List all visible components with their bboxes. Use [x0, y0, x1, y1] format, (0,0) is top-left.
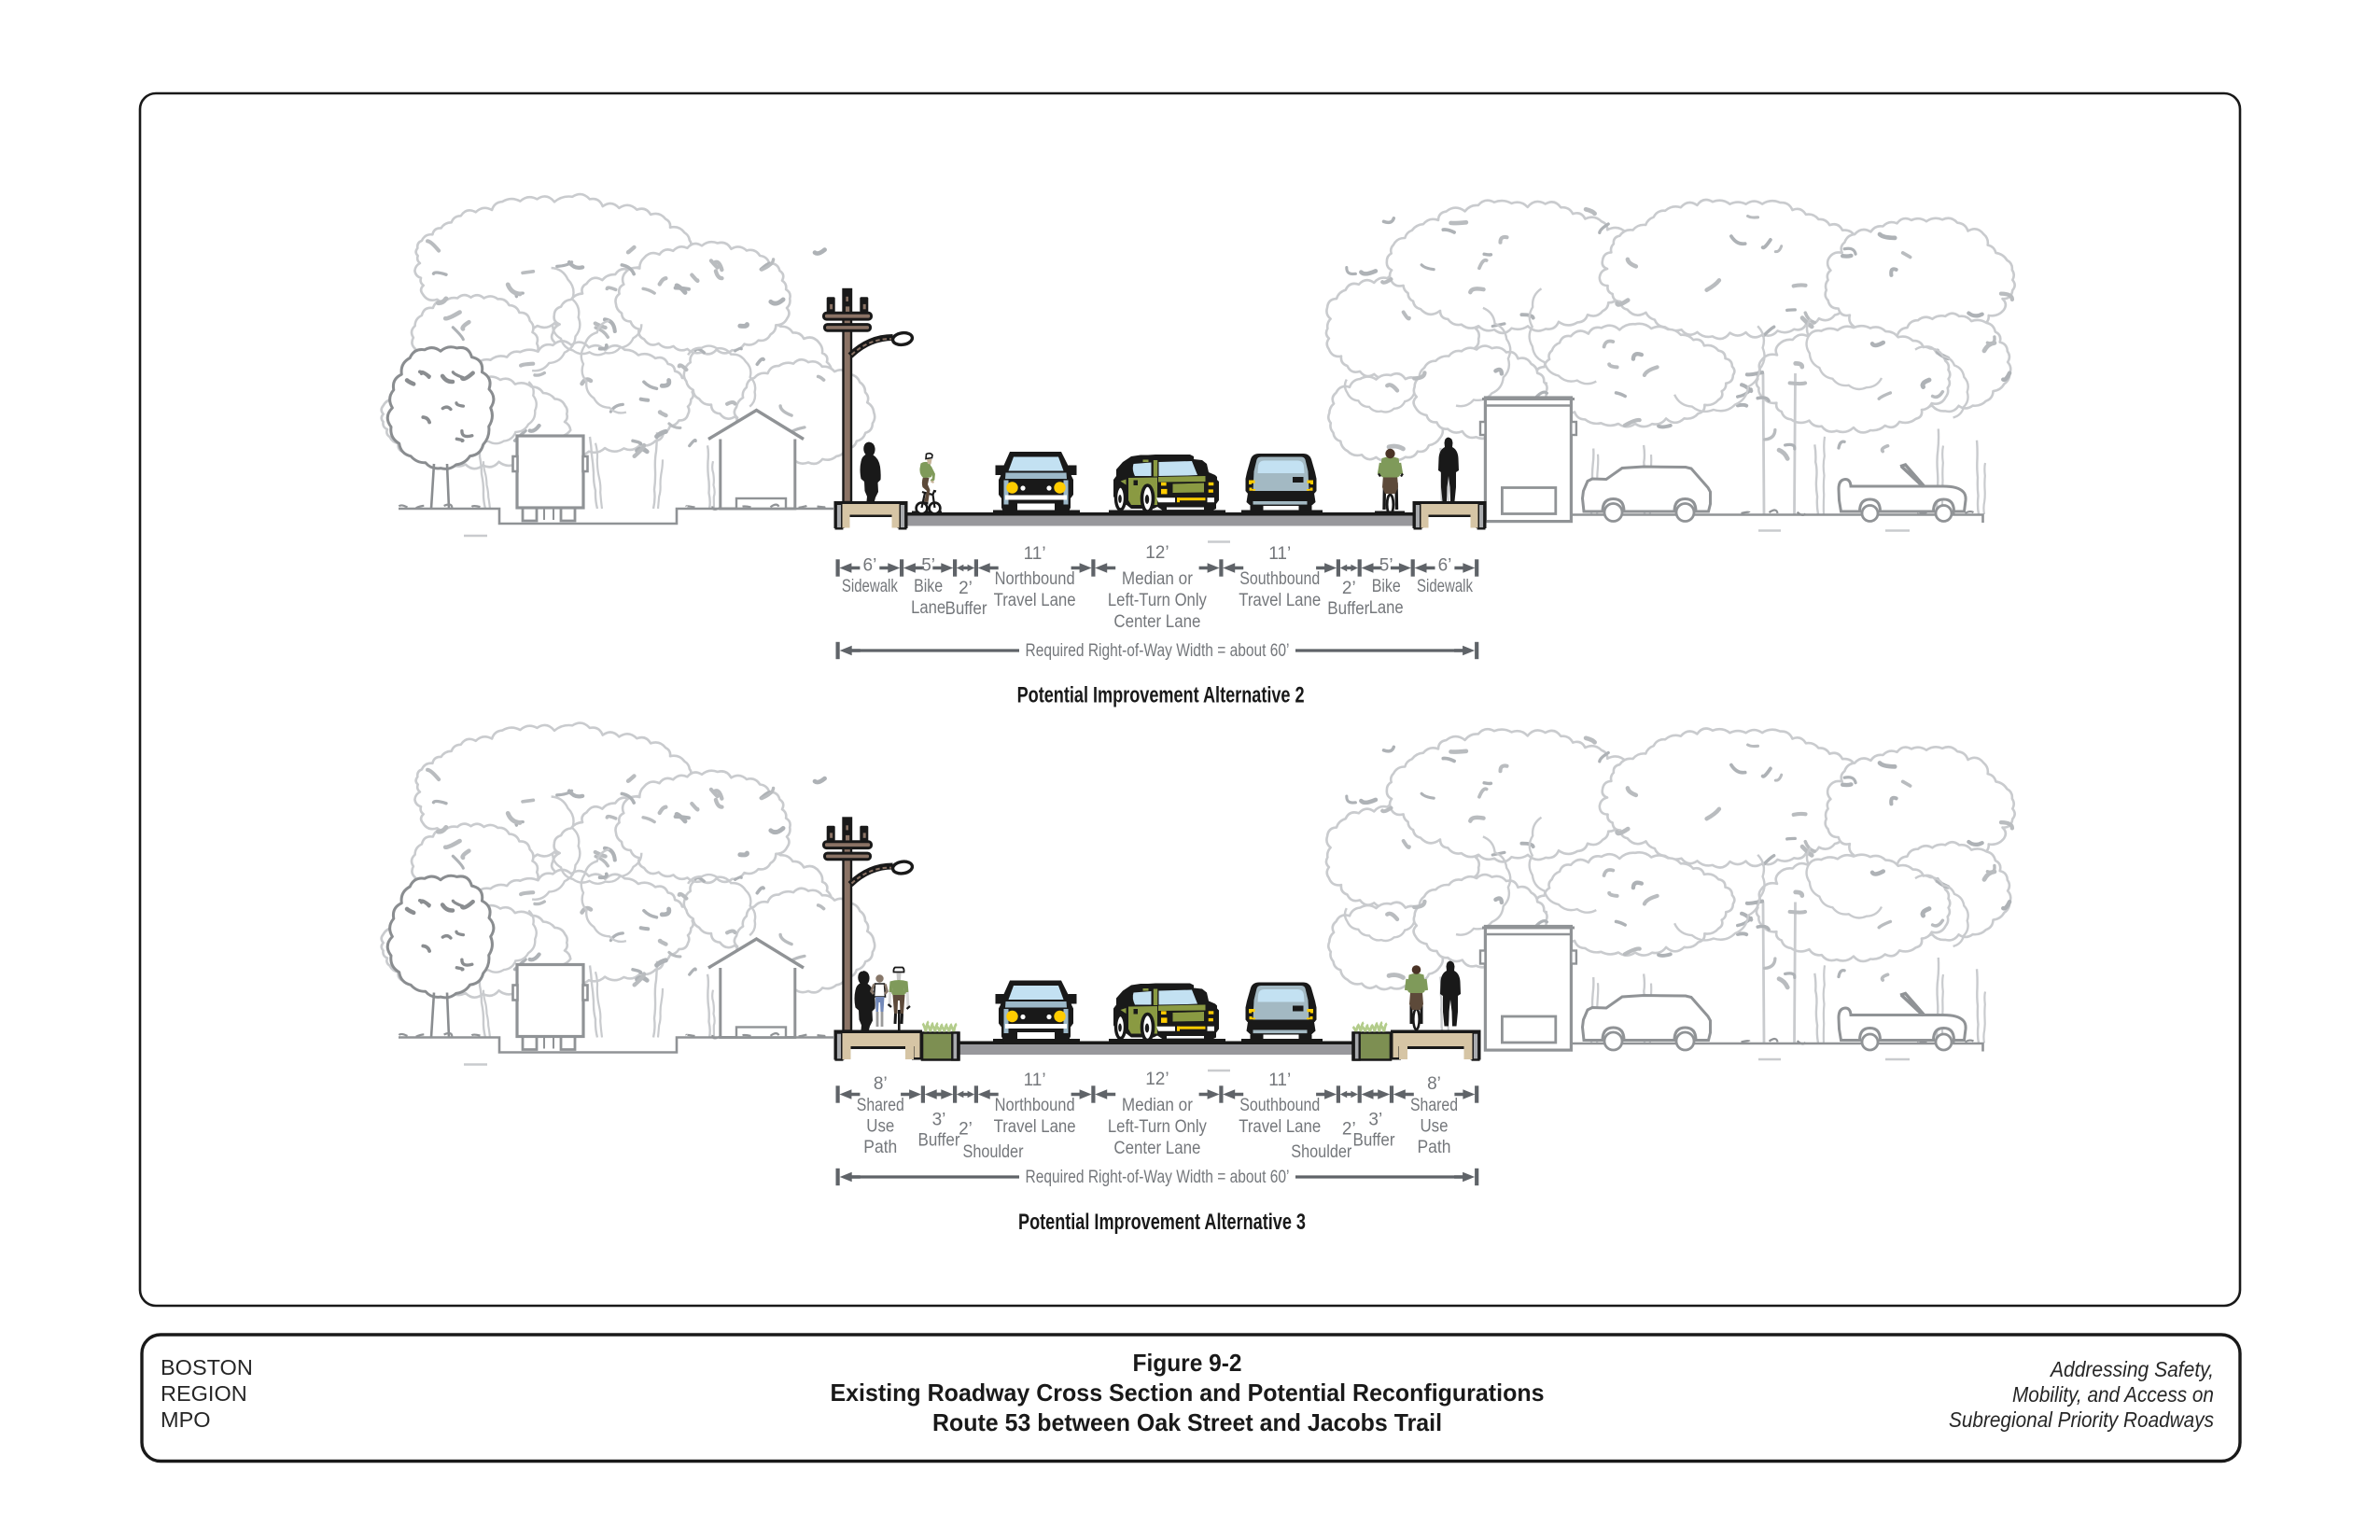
svg-text:Subregional Priority Roadways: Subregional Priority Roadways: [1949, 1407, 2214, 1432]
svg-text:Bike: Bike: [1372, 577, 1401, 596]
svg-text:11’: 11’: [1268, 544, 1291, 564]
svg-text:8’: 8’: [1427, 1074, 1441, 1094]
svg-text:Buffer: Buffer: [918, 1130, 961, 1150]
svg-text:11’: 11’: [1024, 1071, 1046, 1090]
svg-text:Addressing Safety,: Addressing Safety,: [2049, 1357, 2214, 1381]
svg-text:Required Right-of-Way Width =: Required Right-of-Way Width = about 60’: [1026, 641, 1290, 661]
svg-text:Potential Improvement Alternat: Potential Improvement Alternative 2: [1017, 682, 1305, 707]
svg-text:Median or: Median or: [1122, 569, 1194, 589]
svg-text:Travel Lane: Travel Lane: [1239, 1117, 1321, 1137]
svg-text:Required Right-of-Way Width =: Required Right-of-Way Width = about 60’: [1026, 1168, 1290, 1187]
svg-text:Travel Lane: Travel Lane: [994, 1117, 1076, 1137]
svg-text:Buffer: Buffer: [945, 599, 988, 619]
svg-text:Path: Path: [863, 1138, 897, 1157]
svg-text:Shoulder: Shoulder: [963, 1142, 1025, 1162]
svg-text:Shoulder: Shoulder: [1291, 1142, 1352, 1162]
svg-text:Southbound: Southbound: [1239, 1096, 1320, 1115]
svg-text:Northbound: Northbound: [995, 569, 1075, 589]
svg-text:Sidewalk: Sidewalk: [842, 577, 898, 596]
svg-text:5’: 5’: [1379, 556, 1393, 576]
svg-text:5’: 5’: [921, 556, 935, 576]
svg-text:12’: 12’: [1145, 1070, 1169, 1089]
svg-text:Southbound: Southbound: [1239, 569, 1320, 589]
svg-text:Lane: Lane: [911, 598, 945, 618]
svg-text:Northbound: Northbound: [995, 1096, 1075, 1115]
svg-text:Existing Roadway Cross Section: Existing Roadway Cross Section and Poten…: [831, 1379, 1545, 1407]
svg-text:3’: 3’: [932, 1111, 946, 1130]
svg-text:Path: Path: [1418, 1138, 1451, 1157]
svg-text:Center Lane: Center Lane: [1113, 1139, 1200, 1158]
svg-text:Center Lane: Center Lane: [1113, 612, 1200, 632]
svg-text:Buffer: Buffer: [1353, 1130, 1396, 1150]
svg-text:8’: 8’: [874, 1074, 888, 1094]
svg-text:Sidewalk: Sidewalk: [1417, 577, 1473, 596]
svg-text:REGION: REGION: [161, 1381, 247, 1406]
svg-text:MPO: MPO: [161, 1407, 211, 1432]
svg-text:Shared: Shared: [857, 1096, 904, 1115]
svg-text:Left-Turn Only: Left-Turn Only: [1108, 591, 1207, 610]
svg-text:Shared: Shared: [1410, 1096, 1458, 1115]
svg-text:Use: Use: [1421, 1117, 1449, 1137]
svg-text:Lane: Lane: [1369, 598, 1404, 618]
svg-text:Travel Lane: Travel Lane: [1239, 591, 1321, 610]
svg-text:Bike: Bike: [914, 577, 943, 596]
svg-text:Use: Use: [866, 1117, 894, 1137]
svg-text:3’: 3’: [1368, 1111, 1382, 1130]
svg-text:Potential Improvement Alternat: Potential Improvement Alternative 3: [1018, 1210, 1306, 1235]
svg-text:11’: 11’: [1024, 544, 1046, 564]
svg-text:6’: 6’: [863, 556, 877, 576]
svg-text:6’: 6’: [1438, 556, 1452, 576]
svg-text:Buffer: Buffer: [1327, 599, 1370, 619]
svg-text:Figure 9-2: Figure 9-2: [1133, 1349, 1242, 1377]
svg-text:BOSTON: BOSTON: [161, 1355, 253, 1379]
svg-text:Median or: Median or: [1122, 1096, 1194, 1115]
svg-text:Route 53 between Oak Street an: Route 53 between Oak Street and Jacobs T…: [932, 1408, 1442, 1436]
svg-text:Left-Turn Only: Left-Turn Only: [1108, 1117, 1207, 1137]
svg-text:2’: 2’: [959, 1120, 973, 1140]
svg-text:11’: 11’: [1268, 1071, 1291, 1090]
svg-text:12’: 12’: [1145, 543, 1169, 563]
svg-text:2’: 2’: [959, 579, 973, 598]
svg-text:Travel Lane: Travel Lane: [994, 591, 1076, 610]
svg-text:Mobility, and Access on: Mobility, and Access on: [2012, 1382, 2214, 1407]
svg-text:2’: 2’: [1342, 579, 1356, 598]
